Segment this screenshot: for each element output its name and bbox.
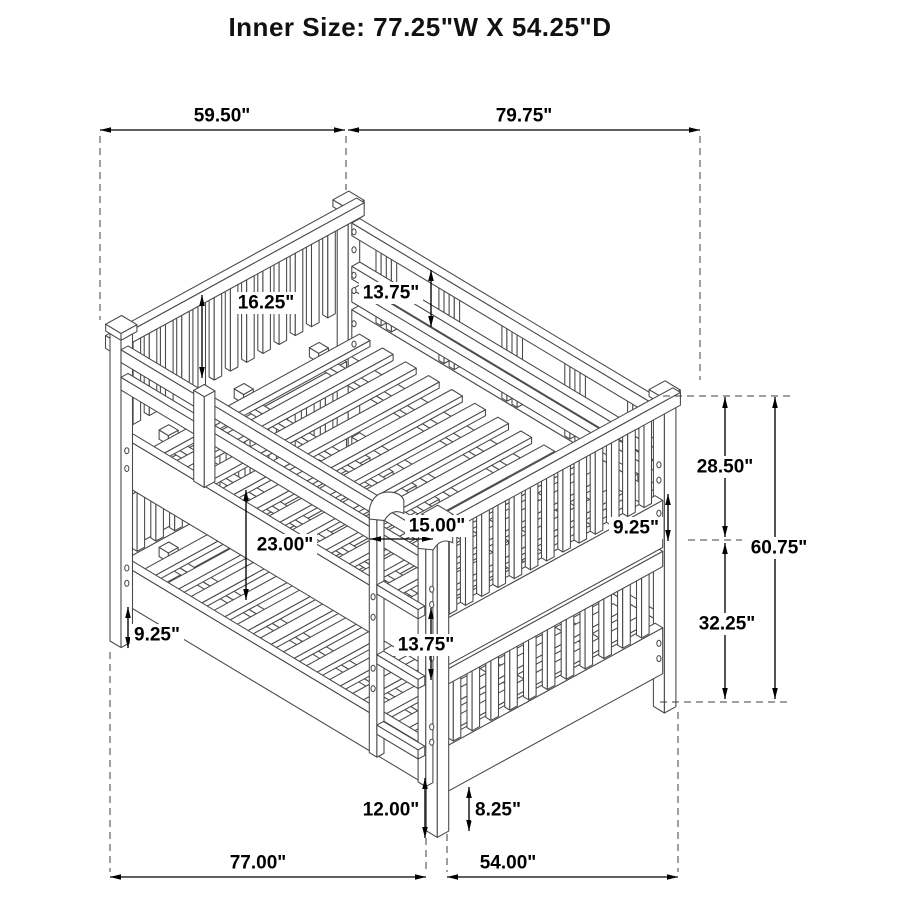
diagram-page: Inner Size: 77.25"W X 54.25"D 59.50"79.7… [0,0,900,900]
dim-label-headboard-panel-height: 16.25" [238,293,295,314]
dim-label-leg-clearance: 8.25" [475,800,521,821]
dim-leg-clearance: 8.25" [466,787,525,831]
dim-depth-overall: 59.50" [100,105,345,133]
dim-label-floor-width: 77.00" [230,853,287,874]
dim-overall-height: 60.75" [747,397,811,699]
dim-width-overall: 79.75" [348,105,700,133]
dim-label-ladder-width: 15.00" [409,516,466,537]
dim-lower-section-height: 32.25" [695,543,759,699]
dim-floor-width: 77.00" [110,852,426,880]
dim-label-floor-depth: 54.00" [480,853,537,874]
dim-label-upper-section-height: 28.50" [697,457,754,478]
dim-label-ladder-ground-clearance: 12.00" [363,800,420,821]
dim-label-overall-height: 60.75" [751,538,808,559]
dim-label-guard-rail-drop: 13.75" [363,283,420,304]
dim-label-depth-overall: 59.50" [194,106,251,127]
dim-floor-depth: 54.00" [447,852,678,880]
dim-label-width-overall: 79.75" [496,106,553,127]
dim-label-lower-rail-clearance: 9.25" [134,625,180,646]
dim-label-guard-rail-height: 9.25" [613,518,659,539]
dim-label-lower-section-height: 32.25" [699,614,756,635]
dim-ladder-ground-clearance: 12.00" [359,778,428,838]
dim-upper-section-height: 28.50" [693,397,757,537]
dim-label-bunk-gap-height: 23.00" [257,535,314,556]
dim-label-ladder-rung-spacing: 13.75" [398,635,455,656]
bunk-bed-dimension-diagram: 59.50"79.75"16.25"13.75"28.50"60.75"32.2… [0,0,900,900]
